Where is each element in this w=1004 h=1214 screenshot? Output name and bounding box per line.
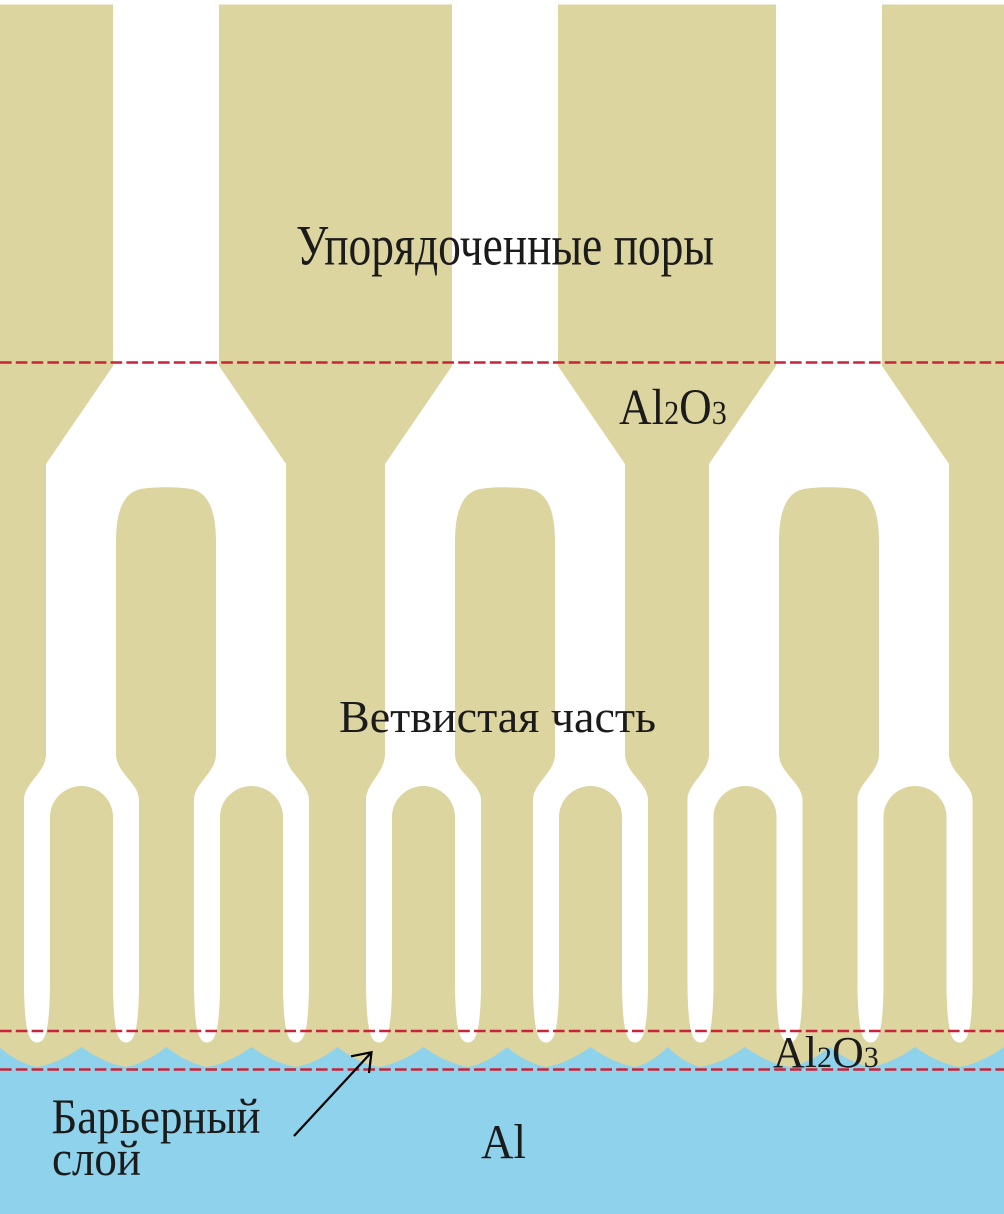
svg-text:Al: Al	[481, 1114, 526, 1169]
svg-text:слой: слой	[52, 1130, 141, 1186]
svg-text:Ветвистая часть: Ветвистая часть	[339, 691, 656, 742]
svg-text:Упорядоченные поры: Упорядоченные поры	[296, 215, 714, 278]
